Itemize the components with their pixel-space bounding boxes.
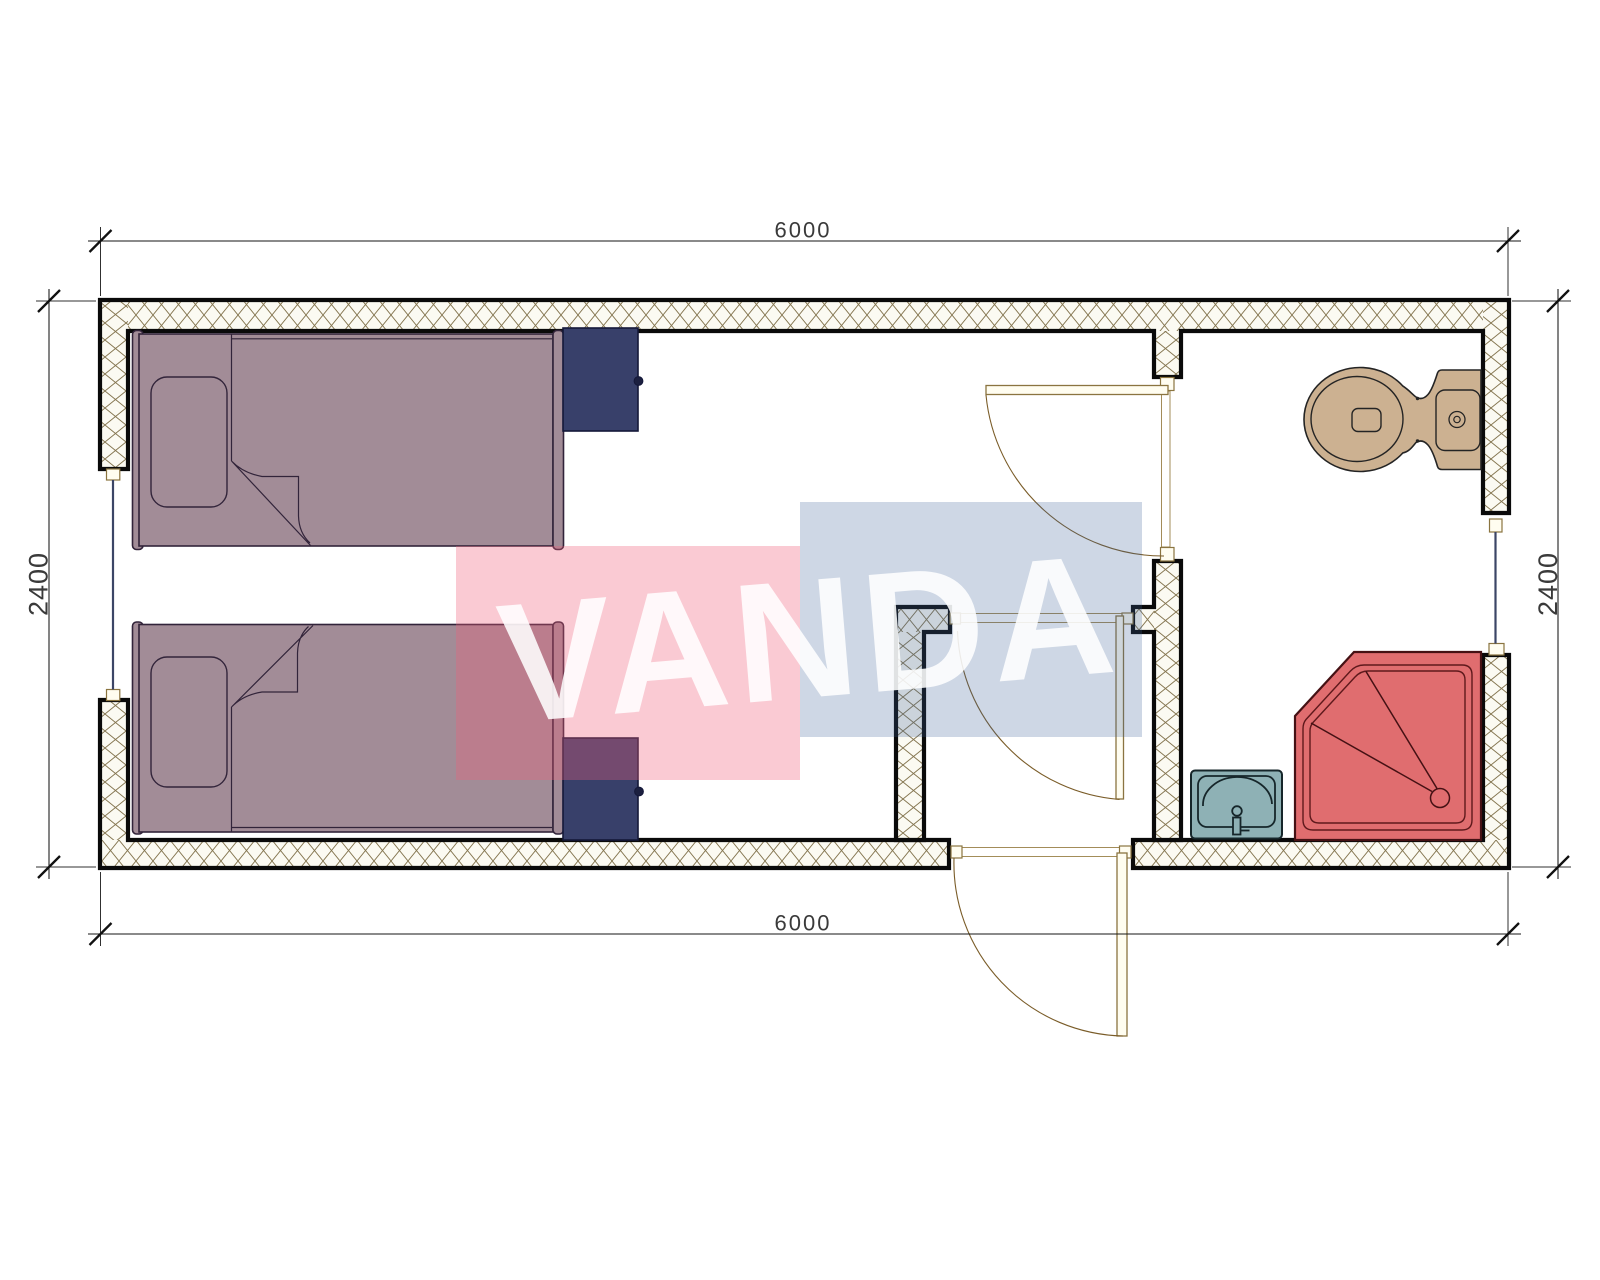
- svg-text:2400: 2400: [24, 552, 54, 616]
- svg-text:2400: 2400: [1533, 552, 1563, 616]
- svg-text:6000: 6000: [775, 218, 832, 243]
- svg-text:6000: 6000: [775, 911, 832, 936]
